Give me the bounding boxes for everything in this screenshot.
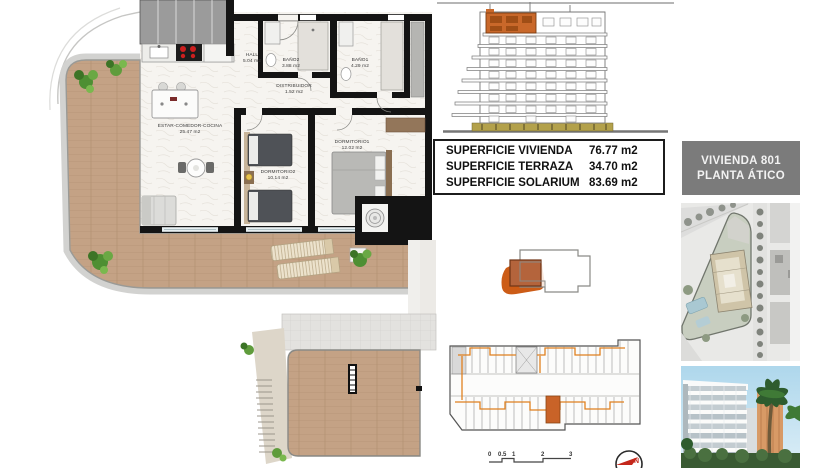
surface-label: SUPERFICIE TERRAZA [435, 161, 589, 173]
floor-key-plan [437, 328, 647, 450]
main-building [683, 380, 748, 458]
unit-key-plan [465, 240, 610, 325]
svg-text:3: 3 [569, 452, 573, 458]
surface-table: SUPERFICIE VIVIENDA 76.77 m2 SUPERFICIE … [433, 139, 665, 195]
cooktop [176, 44, 202, 61]
svg-text:0.5: 0.5 [498, 452, 507, 458]
north-compass-icon: N [606, 446, 654, 468]
svg-text:0: 0 [488, 452, 492, 458]
floor-plan-sheet: HALL5.04 m2 BAÑO23.88 m2 BAÑO14.29 m2 DI… [0, 0, 819, 468]
entry-wardrobe [140, 0, 232, 44]
surface-label: SUPERFICIE VIVIENDA [435, 145, 589, 157]
surface-label: SUPERFICIE SOLARIUM [435, 177, 589, 189]
unit-name: VIVIENDA 801 [701, 154, 781, 168]
table-row: SUPERFICIE VIVIENDA 76.77 m2 [435, 143, 663, 159]
elevation-body [452, 2, 607, 123]
surface-value: 34.70 m2 [589, 161, 663, 173]
unit-floor: PLANTA ÁTICO [697, 169, 785, 183]
sofa [142, 196, 176, 225]
building-photo [681, 366, 800, 468]
unit-highlight [510, 260, 541, 286]
table-row: SUPERFICIE SOLARIUM 83.69 m2 [435, 175, 663, 191]
apartment-floor-plan [0, 0, 450, 468]
kitchen-counter [142, 44, 234, 62]
site-plan-image [681, 203, 800, 361]
svg-text:1: 1 [512, 452, 516, 458]
highlighted-unit [486, 9, 536, 33]
surface-value: 83.69 m2 [589, 177, 663, 189]
neighbor-buildings [770, 203, 800, 361]
unit-highlight-plan [546, 396, 560, 423]
stair-core [516, 347, 537, 373]
svg-text:2: 2 [541, 452, 545, 458]
surface-value: 76.77 m2 [589, 145, 663, 157]
solarium-stair [348, 364, 357, 394]
laundry-niche [355, 196, 432, 245]
unit-label-box: VIVIENDA 801 PLANTA ÁTICO [682, 141, 800, 195]
building-elevation [433, 0, 678, 137]
table-row: SUPERFICIE TERRAZA 34.70 m2 [435, 159, 663, 175]
svg-text:N: N [634, 458, 639, 465]
